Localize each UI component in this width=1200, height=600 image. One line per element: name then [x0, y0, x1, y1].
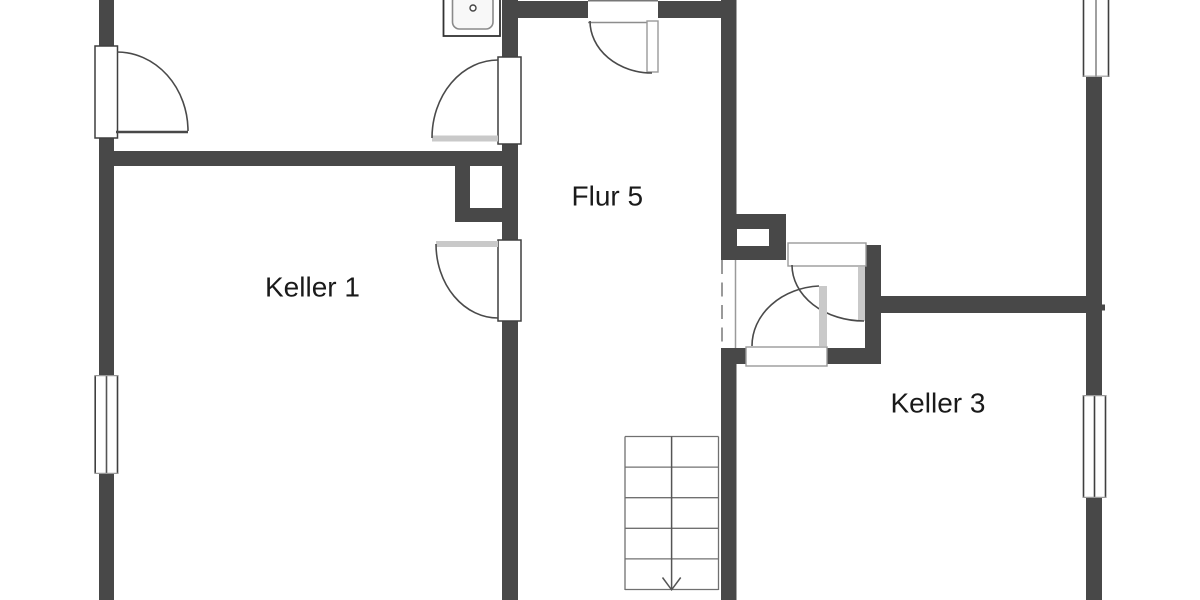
svg-text:Flur 5: Flur 5 — [572, 181, 644, 212]
svg-text:Keller 3: Keller 3 — [891, 388, 986, 419]
svg-text:Keller 1: Keller 1 — [265, 272, 360, 303]
